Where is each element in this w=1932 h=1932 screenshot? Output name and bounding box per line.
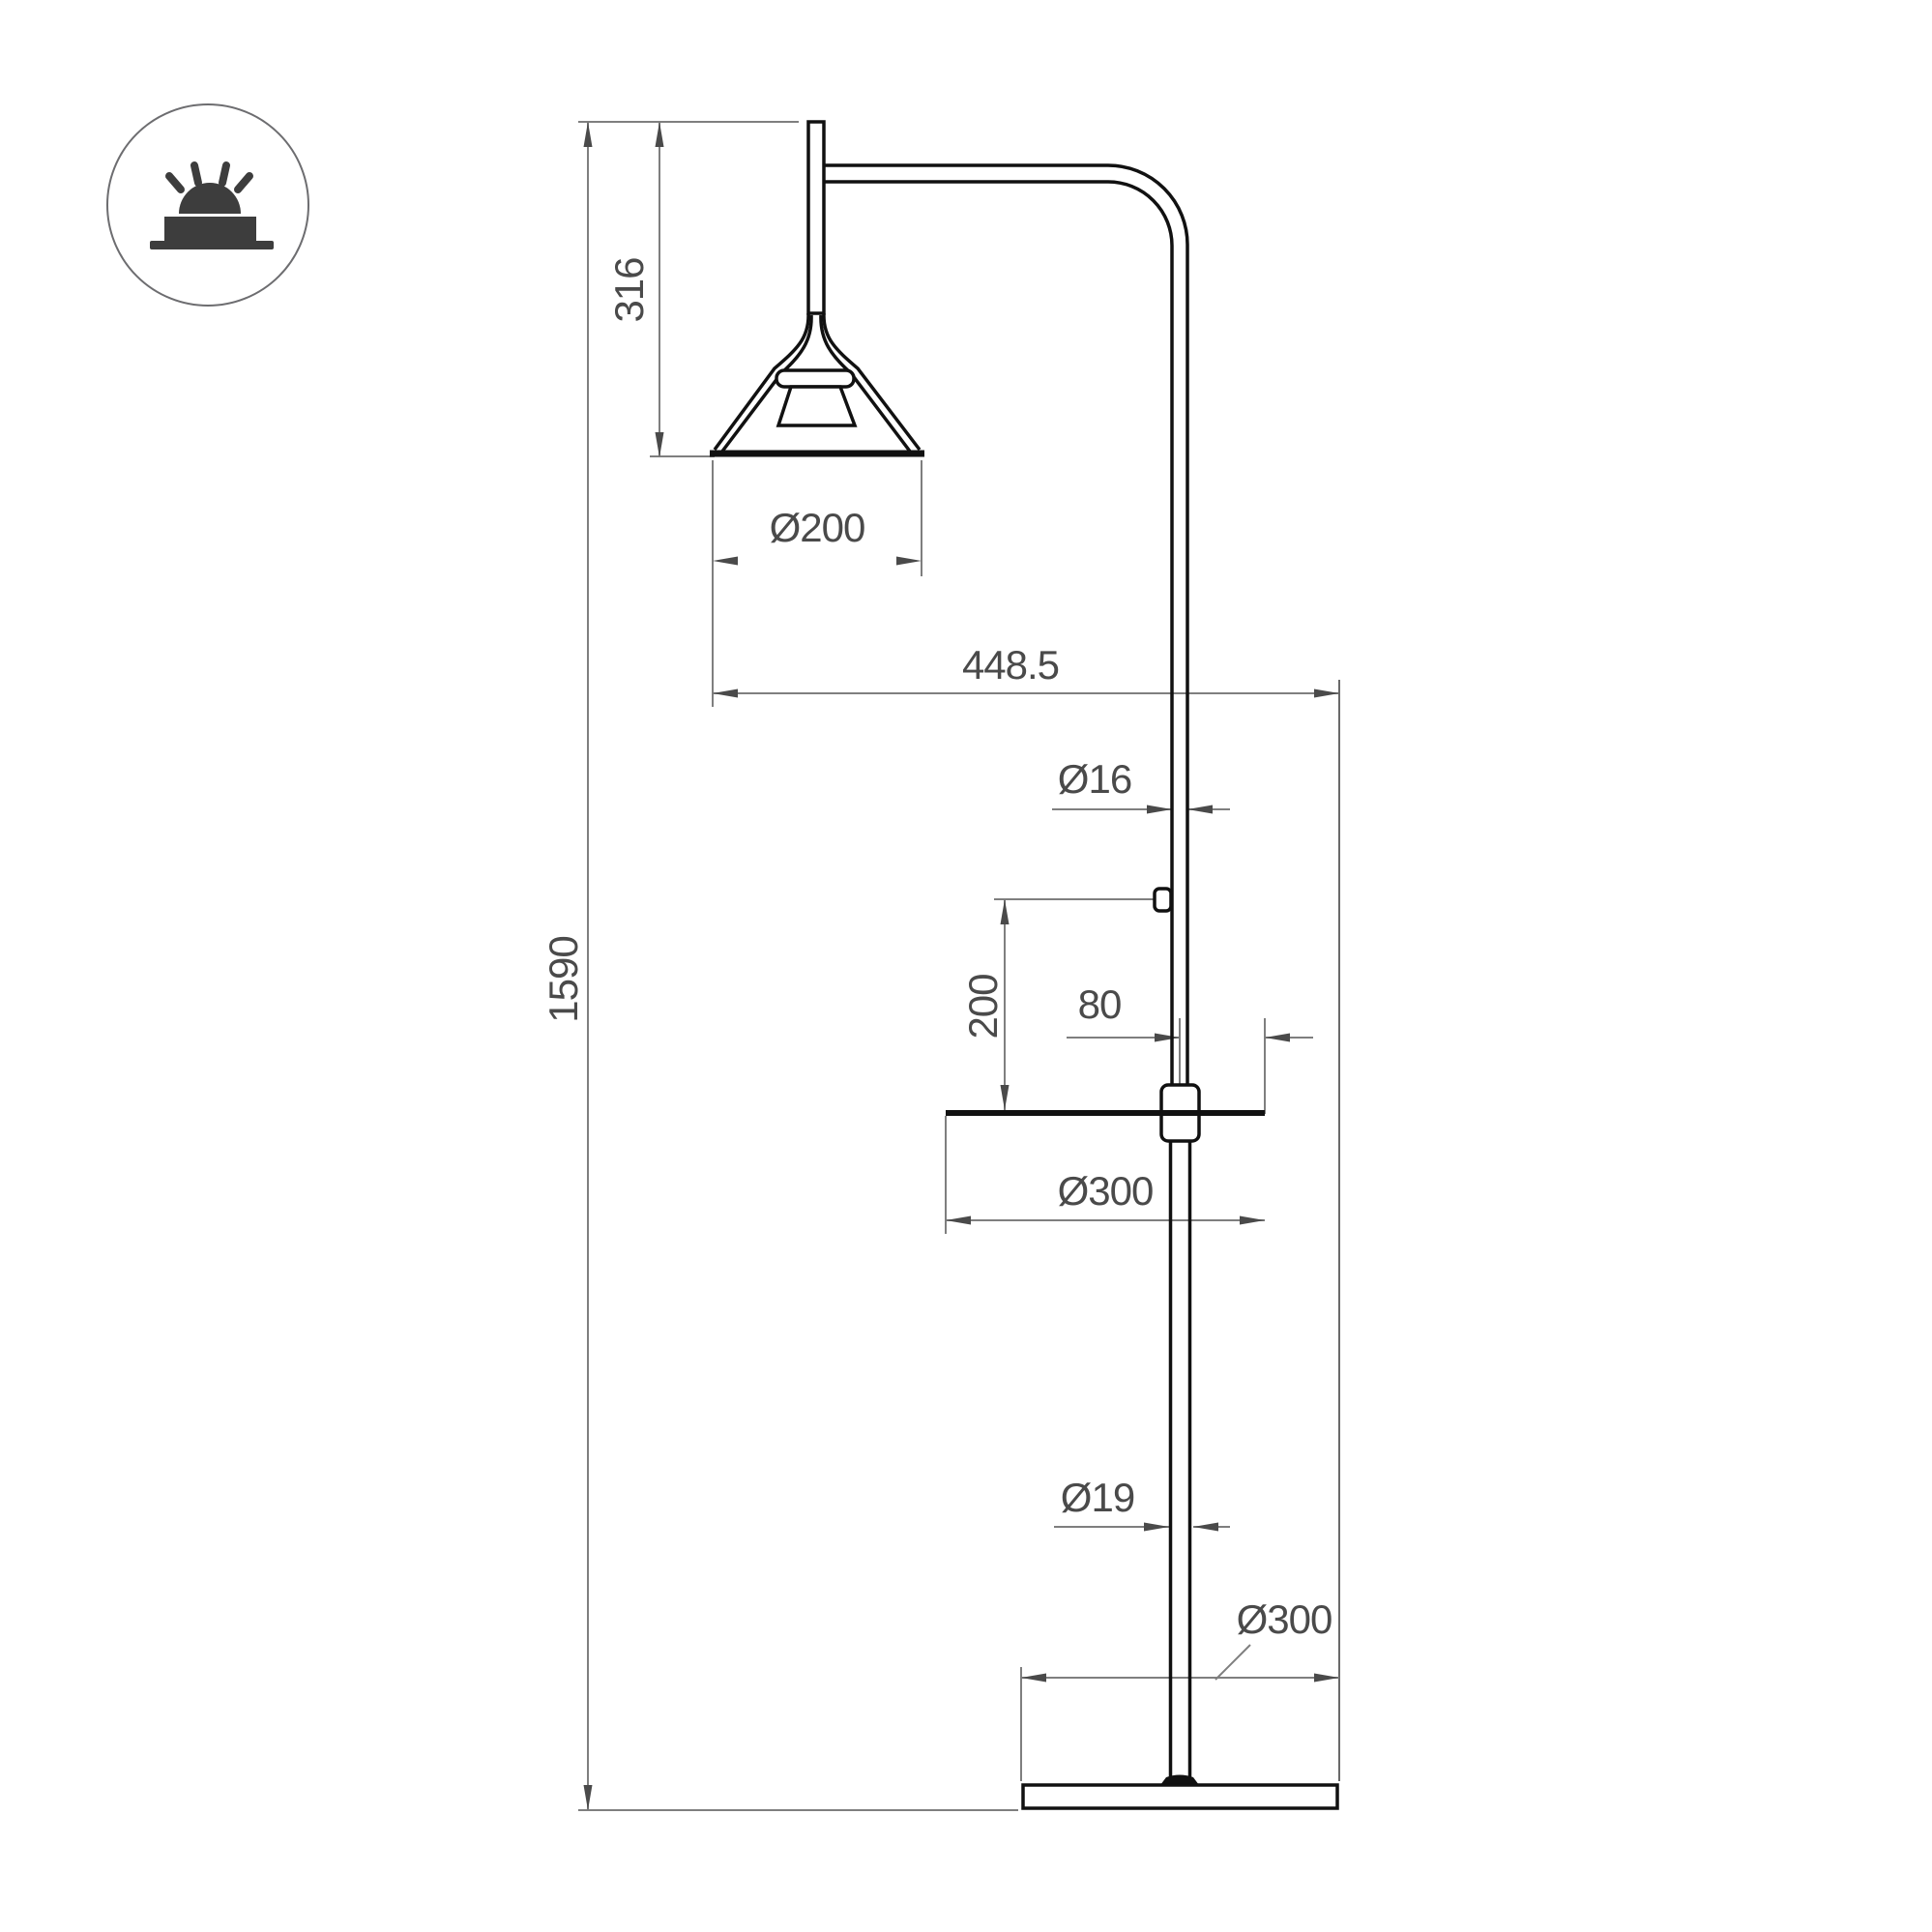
dimension-arrows [584,122,1340,1810]
icon-lamp-base [150,241,274,249]
label-table-diameter: Ø300 [1058,1168,1154,1214]
switch [1155,889,1171,911]
base-plate [1023,1785,1337,1808]
lens-reflector [778,387,855,425]
floor-lamp-outline [710,122,1337,1808]
arrow-shade-dia-left [713,557,738,566]
label-total-height: 1590 [541,936,586,1022]
arrow-switch-top [1001,899,1010,924]
arrow-total-bottom [584,1785,593,1810]
downlight-icon [107,104,308,306]
arrow-arm-left [713,689,738,698]
arrow-pole-dia-right [1187,805,1213,814]
arrow-table-dia-left [946,1216,971,1225]
icon-lamp-body [164,217,256,241]
arrow-total-top [584,122,593,147]
arrow-arm-right [1314,689,1339,698]
arrow-shade-top [656,122,664,147]
icon-ray-3 [222,165,226,183]
led-module [776,370,854,387]
label-shade-diameter: Ø200 [770,505,865,550]
label-lower-pole-diameter: Ø19 [1061,1475,1134,1520]
icon-lamp-dome [179,183,241,214]
arrow-lower-pole-right [1193,1523,1218,1532]
label-pole-diameter: Ø16 [1058,756,1131,802]
floor-lamp-dimension-drawing: 316 1590 Ø200 448.5 Ø16 200 80 Ø300 Ø19 … [0,0,1932,1932]
arrow-offset-left [1155,1034,1180,1042]
label-shade-height: 316 [606,257,652,322]
arrow-base-dia-right [1314,1674,1339,1683]
leader-line-base-dia [1215,1645,1250,1680]
icon-ray-2 [194,165,198,183]
dimension-labels: 316 1590 Ø200 448.5 Ø16 200 80 Ø300 Ø19 … [541,257,1332,1642]
lamp-stem [808,122,824,313]
arm-bottom-edge [824,182,1172,246]
icon-ray-1 [169,176,181,190]
arrow-base-dia-left [1021,1674,1046,1683]
arrow-switch-bottom [1001,1085,1010,1110]
arm-top-edge [824,165,1187,245]
technical-drawing-page: 316 1590 Ø200 448.5 Ø16 200 80 Ø300 Ø19 … [0,0,1932,1932]
arrow-lower-pole-left [1144,1523,1169,1532]
label-table-edge-offset: 80 [1078,981,1122,1027]
label-base-diameter: Ø300 [1237,1596,1332,1642]
dimension-lines [578,122,1339,1810]
label-arm-reach: 448.5 [962,642,1059,688]
label-switch-height: 200 [960,974,1006,1039]
arrow-shade-dia-right [896,557,922,566]
arrow-table-dia-right [1240,1216,1265,1225]
arrow-offset-right [1265,1034,1290,1042]
arrow-pole-dia-left [1147,805,1172,814]
arrow-shade-bottom [656,432,664,457]
icon-ray-4 [238,176,249,190]
